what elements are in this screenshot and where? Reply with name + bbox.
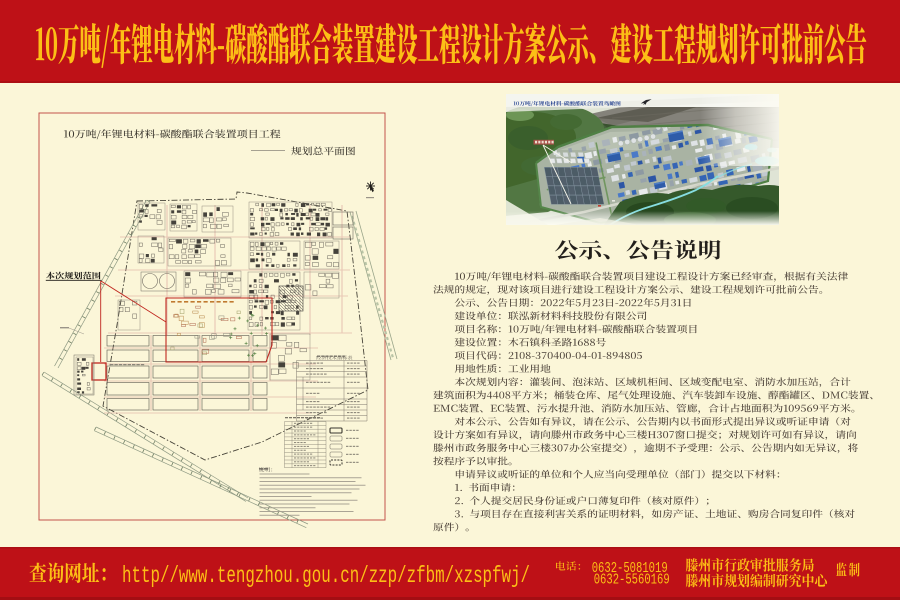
- svg-text:0632-5560169: 0632-5560169: [594, 572, 670, 589]
- svg-text:http//www.tengzhou.gou.cn/zzp/: http//www.tengzhou.gou.cn/zzp/zfbm/xzspf…: [122, 563, 530, 589]
